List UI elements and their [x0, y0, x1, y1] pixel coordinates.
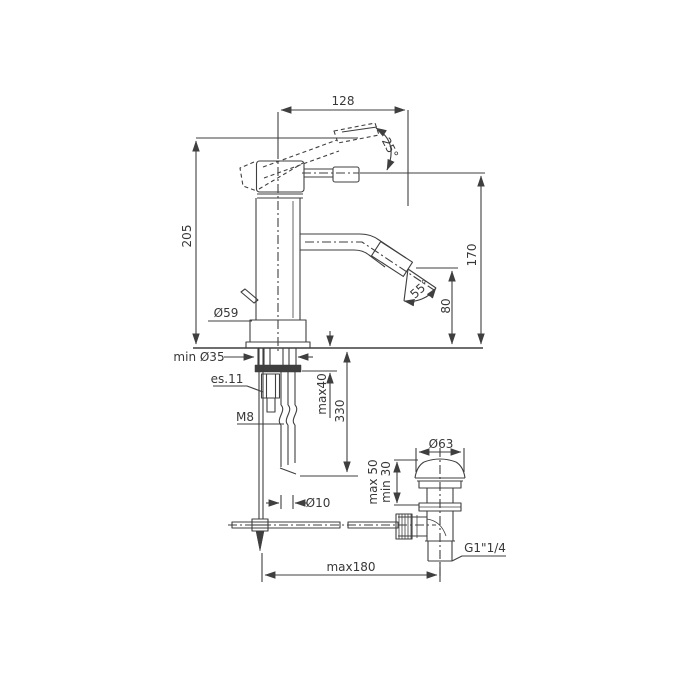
max40-label: max40	[316, 373, 328, 414]
dim-128-label: 128	[332, 95, 355, 107]
min-dia-35-label: min Ø35	[173, 351, 224, 363]
dia-63-label: Ø63	[429, 438, 454, 450]
pop-up-waste-assembly	[396, 459, 465, 561]
max180-label: max180	[326, 561, 375, 573]
dim-330-label: 330	[334, 400, 346, 423]
m8-thread-label: M8	[236, 411, 254, 423]
drain-max50-label: max 50	[367, 459, 379, 504]
technical-drawing-canvas: 128 25° 205 170 80 55° Ø59 min Ø35 es.11…	[0, 0, 685, 685]
dia-10-label: Ø10	[306, 497, 331, 509]
faucet-body-outline	[241, 127, 436, 348]
fixing-gasket	[255, 365, 301, 372]
g1-14-thread-label: G1"1/4	[464, 542, 506, 554]
faucet-phantom-lever	[240, 123, 379, 191]
dim-205-label: 205	[181, 225, 193, 248]
hex-key-label: es.11	[211, 373, 244, 385]
dim-80-label: 80	[440, 298, 452, 313]
drain-min30-label: min 30	[380, 461, 392, 503]
dim-170-label: 170	[466, 244, 478, 267]
dia-59-label: Ø59	[214, 307, 239, 319]
